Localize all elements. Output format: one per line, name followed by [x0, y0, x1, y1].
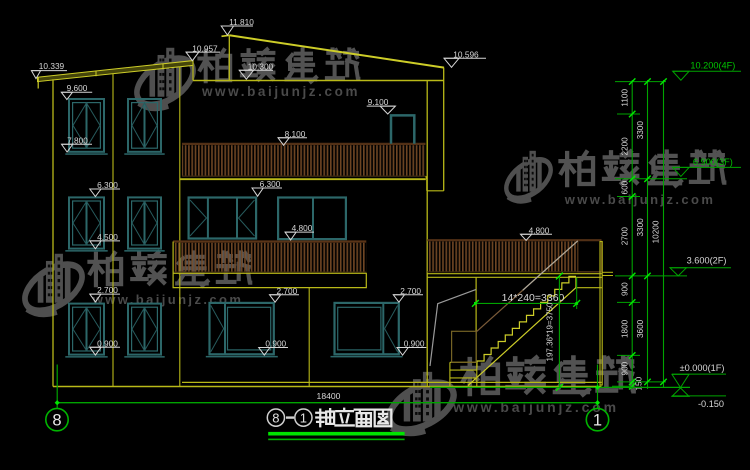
svg-text:2700: 2700 — [621, 227, 630, 246]
svg-text:18400: 18400 — [317, 391, 341, 401]
svg-text:3300: 3300 — [636, 121, 645, 140]
svg-text:±0.000(1F): ±0.000(1F) — [680, 363, 725, 373]
svg-text:www.baijunjz.com: www.baijunjz.com — [564, 192, 716, 207]
svg-text:600: 600 — [621, 180, 630, 194]
svg-text:-0.150: -0.150 — [698, 399, 724, 409]
svg-text:6.300: 6.300 — [97, 180, 118, 190]
svg-text:1800: 1800 — [621, 319, 630, 338]
svg-text:1100: 1100 — [621, 89, 630, 107]
svg-text:1: 1 — [300, 410, 307, 425]
svg-text:1: 1 — [593, 411, 602, 429]
svg-text:3600: 3600 — [636, 319, 645, 338]
svg-text:197.36*19=3750: 197.36*19=3750 — [546, 302, 555, 362]
svg-text:3.600(2F): 3.600(2F) — [687, 256, 727, 266]
svg-text:10200: 10200 — [652, 220, 661, 243]
svg-text:900: 900 — [621, 361, 630, 375]
svg-text:2200: 2200 — [621, 137, 630, 156]
svg-text:8: 8 — [272, 410, 279, 425]
svg-text:14*240=3360: 14*240=3360 — [502, 292, 565, 304]
svg-text:150: 150 — [635, 376, 644, 390]
svg-text:10.339: 10.339 — [39, 61, 65, 71]
svg-text:10.200(4F): 10.200(4F) — [690, 61, 735, 71]
svg-text:3300: 3300 — [636, 218, 645, 237]
svg-text:900: 900 — [621, 282, 630, 296]
svg-text:6.900(3F): 6.900(3F) — [693, 157, 733, 167]
svg-text:www.baijunjz.com: www.baijunjz.com — [201, 84, 360, 99]
svg-text:8: 8 — [52, 411, 61, 429]
